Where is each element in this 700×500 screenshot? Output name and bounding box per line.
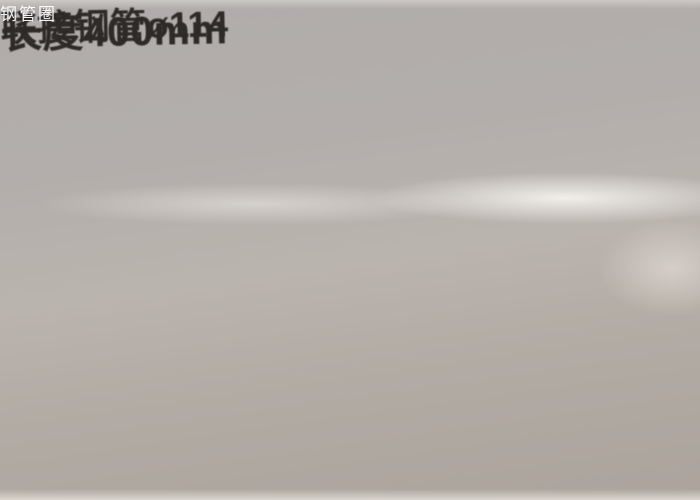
technical-drawing — [0, 0, 700, 500]
drawing-photo: 联接钢管ø114 长度400mm 钢管圈 — [0, 0, 700, 500]
watermark-text: 钢管圈 — [0, 0, 57, 25]
